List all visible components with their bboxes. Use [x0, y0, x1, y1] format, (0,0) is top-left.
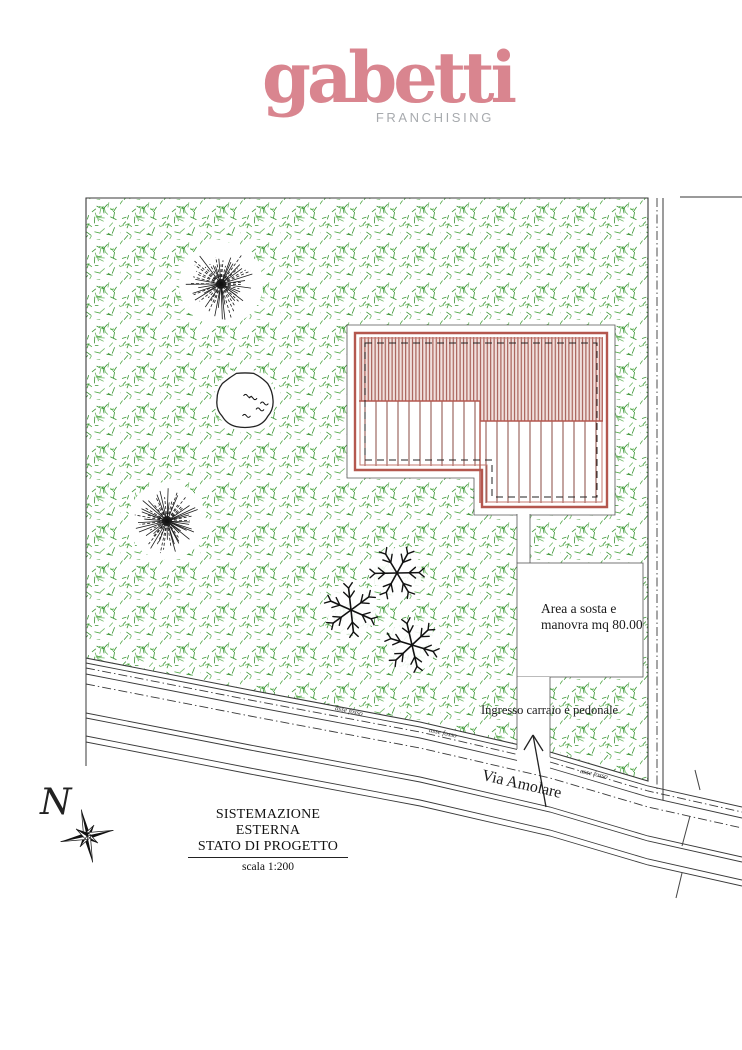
title-line2: STATO DI PROGETTO [183, 839, 353, 855]
north-letter: N [40, 782, 72, 823]
tree-starburst-2 [128, 482, 206, 560]
parking-area-label: Area a sosta e manovra mq 80.00 [541, 601, 661, 633]
title-line1: SISTEMAZIONE ESTERNA [183, 807, 353, 839]
parking-area-line1: Area a sosta e [541, 601, 616, 616]
tree-bush [214, 369, 276, 431]
title-underline [188, 857, 348, 858]
title-block: SISTEMAZIONE ESTERNA STATO DI PROGETTO s… [183, 807, 353, 873]
scale-label: scala 1:200 [183, 861, 353, 873]
tree-starburst-1 [179, 242, 263, 326]
entrance-label: Ingresso carraio e pedonale [481, 703, 618, 718]
parking-area-line2: manovra mq 80.00 [541, 617, 643, 632]
site-plan-drawing [0, 0, 742, 1050]
page: gabetti FRANCHISING Area a sosta e manov… [0, 0, 742, 1050]
